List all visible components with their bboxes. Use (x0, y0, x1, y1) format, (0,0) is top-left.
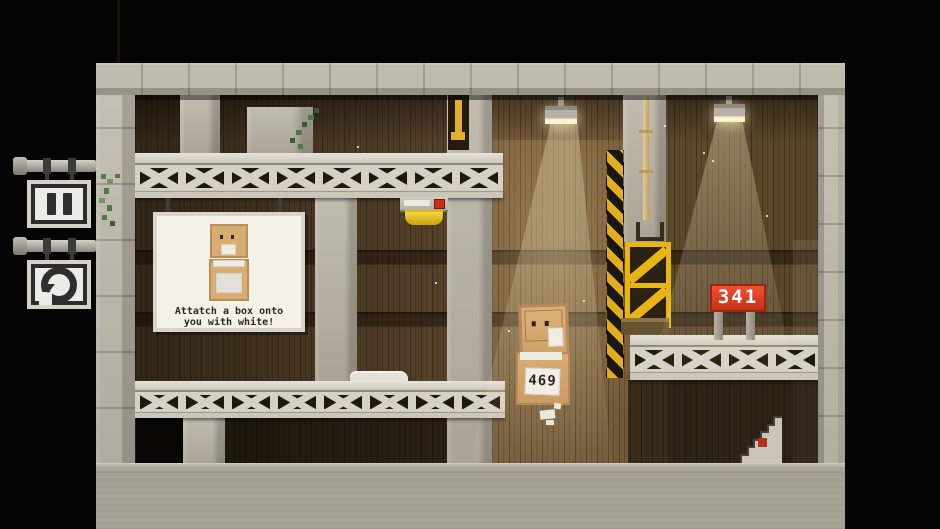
walkway-lattice (135, 165, 503, 191)
restart-button[interactable] (31, 264, 87, 305)
vine (95, 172, 135, 230)
walkway-block (460, 393, 502, 411)
walkway-base (630, 372, 820, 380)
walkway-rail (135, 153, 503, 165)
walkway-block (633, 348, 676, 371)
paper-scrap (546, 420, 554, 425)
tower-diagonal (630, 247, 666, 284)
player-body-box: 469 (516, 352, 570, 405)
pole-cap (13, 157, 27, 175)
walkway-block (727, 348, 770, 371)
sign-chain (278, 198, 282, 212)
paper-scrap (540, 409, 556, 420)
box-label (221, 244, 236, 255)
red-marker (758, 438, 767, 447)
tutorial-text-line1: Attatch a box onto (175, 306, 283, 317)
walkway-block (321, 166, 363, 190)
box-eye (220, 235, 223, 239)
walkway-block (367, 166, 409, 190)
walkway-block (184, 393, 226, 411)
tutorial-sign: Attatch a box onto you with white! (153, 212, 305, 332)
walkway-rail (135, 381, 505, 392)
sign-illustration-body-box (209, 259, 249, 301)
beam-shadow (135, 95, 818, 100)
cable-tick (639, 130, 653, 133)
body-number-label: 469 (525, 367, 561, 395)
walkway-block (184, 166, 226, 190)
walkway-block (774, 348, 817, 371)
floor-seam (96, 471, 845, 473)
dust-speck (703, 152, 705, 154)
ceiling-light (714, 104, 745, 122)
walkway-upper-left (135, 153, 503, 198)
counter-sign: 341 (710, 284, 766, 312)
walkway-block (230, 166, 272, 190)
right-wall (818, 95, 845, 463)
walkway-right (630, 335, 820, 380)
dust-speck (583, 300, 585, 302)
walkway-block (322, 393, 364, 411)
sign-illustration-head-box (210, 224, 248, 258)
crane-hook (636, 222, 664, 241)
walkway-block (138, 393, 180, 411)
paper-pile (350, 371, 408, 382)
head-white-label (548, 327, 564, 347)
walkway-lower-left (135, 381, 505, 418)
walkway-lattice (135, 392, 505, 412)
walkway-block (138, 166, 180, 190)
pause-button[interactable] (31, 184, 87, 224)
hazard-stripe-pole (606, 150, 624, 378)
shadow-under-walkway (225, 418, 447, 463)
box-eye (231, 235, 234, 239)
crane-hook-small-foot (451, 132, 465, 140)
walkway-block (413, 166, 455, 190)
counter-leg (746, 308, 755, 340)
walkway-block (368, 393, 410, 411)
walkway-block (414, 393, 456, 411)
player-eye (545, 321, 549, 326)
crane-hook-small (455, 100, 462, 134)
walkway-block (680, 348, 723, 371)
walkway-block (230, 393, 272, 411)
dispenser-slot (404, 200, 430, 206)
walkway-block (275, 166, 317, 190)
dust-speck (766, 215, 768, 217)
player-head-box (518, 303, 570, 359)
pillar-bottom-left (183, 417, 225, 463)
restart-icon (41, 267, 77, 303)
counter-leg (714, 308, 723, 340)
walkway-base (135, 412, 505, 418)
dust-speck (664, 125, 666, 127)
walkway-rail (630, 335, 820, 347)
dispenser-light (434, 199, 445, 209)
game-screen: Attatch a box onto you with white! 341 4… (0, 0, 940, 529)
box-white-wrap (213, 260, 245, 267)
pillar-top-left (180, 95, 220, 155)
player-eye (532, 321, 536, 326)
ceiling-beam (96, 63, 845, 95)
hanging-pole (18, 240, 96, 252)
tutorial-text-line2: you with white! (175, 317, 283, 328)
dust-speck (435, 282, 437, 284)
dust-speck (712, 160, 714, 162)
walkway-block (458, 166, 500, 190)
sign-chain (166, 198, 170, 212)
left-wall (96, 95, 135, 463)
scaffold-tower (625, 242, 671, 328)
sign-hanger (70, 172, 74, 184)
paper-scrap (554, 402, 562, 409)
pause-icon (47, 193, 72, 215)
ceiling-light (545, 106, 577, 124)
vine (288, 108, 324, 152)
doorway (136, 417, 183, 463)
sign-hanger (45, 172, 49, 184)
tower-cell (630, 247, 666, 288)
stair-step (773, 416, 782, 426)
pole-cap (13, 237, 27, 255)
hanging-chain-silhouette (117, 0, 120, 63)
pillar-mid-left (315, 198, 357, 381)
dust-speck (357, 146, 359, 148)
body-open-flap (520, 352, 562, 360)
sign-hanger (45, 252, 49, 264)
player-box-number: 469 (528, 373, 557, 390)
crane-cable (643, 95, 649, 220)
tower-base (621, 318, 669, 334)
dust-speck (508, 330, 510, 332)
cable-tick (639, 170, 653, 173)
shadow-under-walkway (628, 380, 818, 463)
sign-hanger (70, 252, 74, 264)
hanging-pole (18, 160, 96, 172)
walkway-block (276, 393, 318, 411)
box-big-label (216, 273, 242, 293)
dispenser-hopper (405, 210, 443, 225)
walkway-lattice (630, 347, 820, 372)
counter-value: 341 (718, 286, 758, 308)
